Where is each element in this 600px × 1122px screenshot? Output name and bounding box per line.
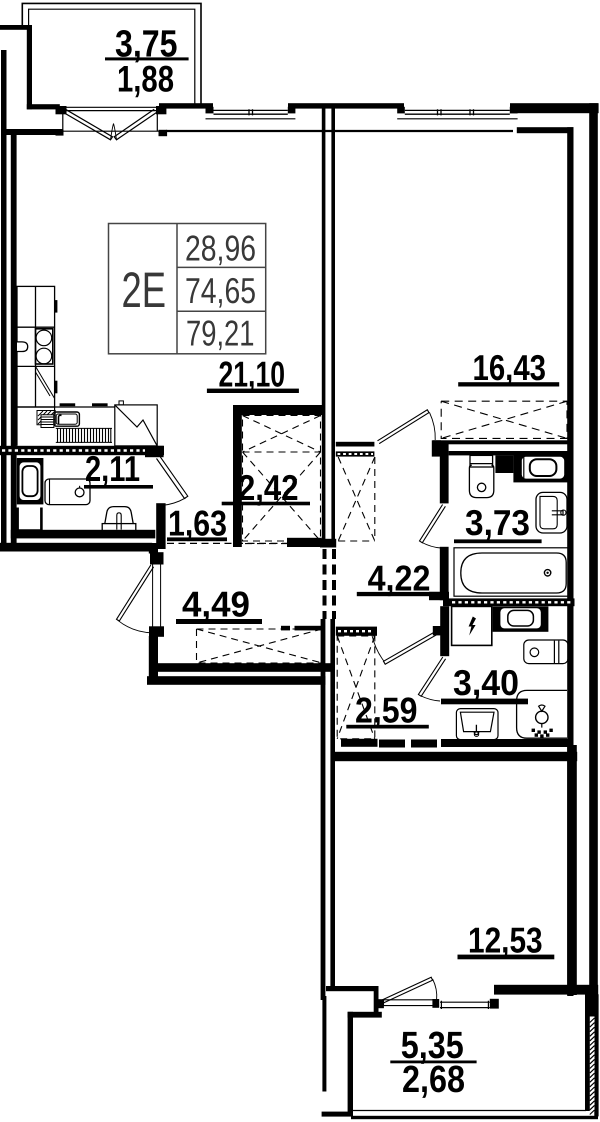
svg-text:74,65: 74,65 [185, 270, 256, 311]
svg-text:12,53: 12,53 [468, 919, 543, 960]
svg-text:2,59: 2,59 [355, 690, 418, 731]
svg-text:1,88: 1,88 [117, 59, 174, 100]
svg-text:2E: 2E [122, 262, 167, 318]
svg-text:3,73: 3,73 [465, 502, 530, 543]
svg-text:4,49: 4,49 [182, 584, 250, 625]
svg-text:79,21: 79,21 [186, 313, 255, 354]
svg-text:16,43: 16,43 [473, 347, 547, 388]
svg-text:2,68: 2,68 [402, 1059, 465, 1101]
svg-text:28,96: 28,96 [185, 228, 256, 269]
svg-text:2,11: 2,11 [85, 448, 140, 489]
svg-text:3,40: 3,40 [453, 662, 519, 703]
svg-text:21,10: 21,10 [219, 354, 286, 395]
svg-text:1,63: 1,63 [168, 503, 227, 544]
